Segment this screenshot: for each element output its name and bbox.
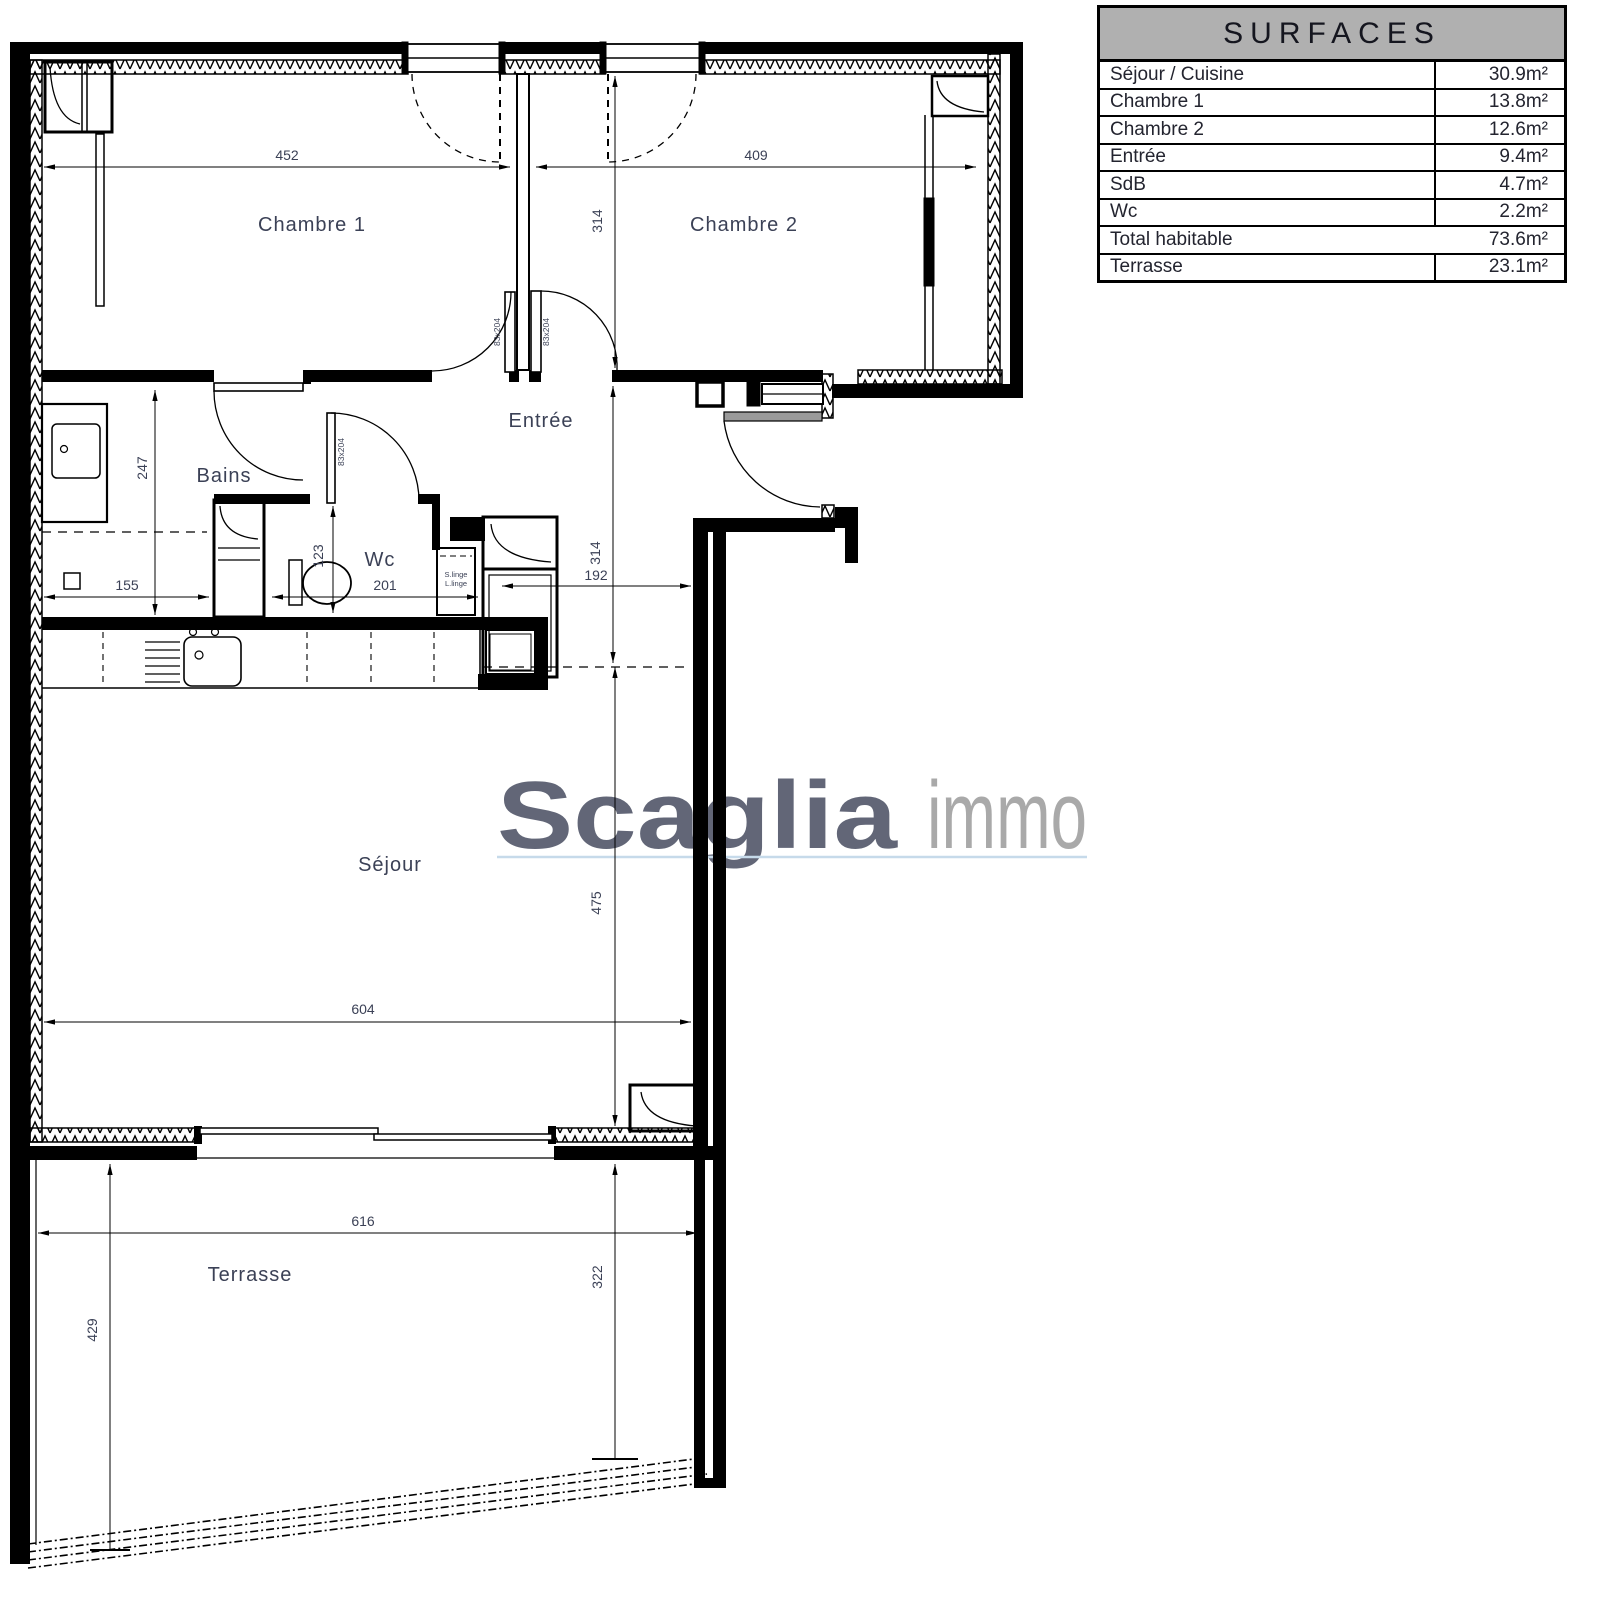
door-size-label-3: 83x204 <box>336 438 346 466</box>
wall-return-chambre1 <box>96 134 104 306</box>
table-row: Wc 2.2m² <box>1100 200 1564 228</box>
room-label-bains: Bains <box>196 465 251 487</box>
brand-watermark: Scagliaimmo <box>497 762 1087 869</box>
room-label-wc: Wc <box>365 549 396 571</box>
dim-616: 616 <box>351 1213 375 1229</box>
room-label-chambre1: Chambre 1 <box>258 214 366 236</box>
door-bains-leaf <box>214 383 303 391</box>
closet-entree-top <box>483 517 557 569</box>
floor-drain <box>64 573 80 589</box>
kitchen-sink <box>184 629 241 687</box>
dim-314-entree: 314 <box>587 541 603 565</box>
surfaces-table: SURFACES Séjour / Cuisine 30.9m² Chambre… <box>1097 5 1567 283</box>
row-label: Séjour / Cuisine <box>1100 62 1434 88</box>
table-row: Entrée 9.4m² <box>1100 145 1564 173</box>
floorplan-page: Scagliaimmo <box>0 0 1600 1600</box>
row-label: Wc <box>1100 200 1434 226</box>
brand-name-light: immo <box>927 762 1087 869</box>
row-label: Chambre 2 <box>1100 117 1434 143</box>
window-swing-ch2 <box>608 74 696 162</box>
window-chambre1 <box>402 42 505 74</box>
partition-wall <box>517 74 529 370</box>
windows-layer <box>197 42 823 1158</box>
table-row: Séjour / Cuisine 30.9m² <box>1100 62 1564 90</box>
row-label: Entrée <box>1100 145 1434 171</box>
kitchen-drainer <box>145 642 180 682</box>
row-label: Chambre 1 <box>1100 90 1434 116</box>
room-label-terrasse: Terrasse <box>208 1264 293 1286</box>
closet-sejour <box>630 1085 700 1131</box>
table-row: Chambre 1 13.8m² <box>1100 90 1564 118</box>
row-value: 13.8m² <box>1434 90 1564 116</box>
row-value: 12.6m² <box>1434 117 1564 143</box>
row-value: 23.1m² <box>1434 255 1564 281</box>
dim-247: 247 <box>134 456 150 480</box>
table-row: Chambre 2 12.6m² <box>1100 117 1564 145</box>
dim-429: 429 <box>84 1318 100 1342</box>
dim-452: 452 <box>275 147 299 163</box>
svg-text:Scagliaimmo: Scagliaimmo <box>497 762 1087 869</box>
dim-322: 322 <box>589 1265 605 1289</box>
dim-123: 123 <box>310 544 326 568</box>
door-entry-swing <box>724 421 820 507</box>
room-label-entree: Entrée <box>509 410 574 432</box>
dim-314-chambre2: 314 <box>589 209 605 233</box>
window-swing-ch1 <box>412 74 500 162</box>
labels-layer: Chambre 1 Chambre 2 Entrée Bains Wc Séjo… <box>84 147 798 1342</box>
door-chambre2-leaf <box>531 291 541 372</box>
dim-192: 192 <box>584 567 608 583</box>
dim-201: 201 <box>373 577 397 593</box>
door-size-label-1: 83x204 <box>492 318 502 346</box>
row-label: Total habitable <box>1100 227 1436 253</box>
dim-475: 475 <box>588 891 604 915</box>
laundry-label-line2: L.linge <box>445 579 467 588</box>
door-entry-leaf <box>724 412 822 421</box>
door-size-label-2: 83x204 <box>541 318 551 346</box>
surfaces-table-title: SURFACES <box>1100 8 1564 62</box>
dim-604: 604 <box>351 1001 375 1017</box>
row-value: 9.4m² <box>1434 145 1564 171</box>
row-value: 73.6m² <box>1436 227 1564 253</box>
table-row: SdB 4.7m² <box>1100 172 1564 200</box>
room-label-sejour: Séjour <box>358 854 422 876</box>
row-label: Terrasse <box>1100 255 1434 281</box>
terrace-railing <box>28 1458 710 1568</box>
sliding-bay-door <box>197 1128 554 1158</box>
door-wc-leaf <box>327 413 335 503</box>
row-value: 30.9m² <box>1434 62 1564 88</box>
kitchen-duct <box>486 630 535 674</box>
window-chambre2 <box>600 42 705 74</box>
table-row-total: Total habitable 73.6m² <box>1100 227 1564 255</box>
table-row: Terrasse 23.1m² <box>1100 255 1564 281</box>
laundry-label-line1: S.linge <box>445 570 468 579</box>
dim-155: 155 <box>115 577 139 593</box>
room-label-chambre2: Chambre 2 <box>690 214 798 236</box>
kitchen-counter <box>42 630 480 688</box>
window-entree-transom <box>697 382 823 406</box>
dim-409: 409 <box>744 147 768 163</box>
row-label: SdB <box>1100 172 1434 198</box>
closet-chambre2 <box>924 76 988 370</box>
bathroom-vanity <box>42 404 107 522</box>
door-chambre2-swing <box>541 291 617 371</box>
row-value: 2.2m² <box>1434 200 1564 226</box>
closet-bains <box>214 500 264 617</box>
row-value: 4.7m² <box>1434 172 1564 198</box>
